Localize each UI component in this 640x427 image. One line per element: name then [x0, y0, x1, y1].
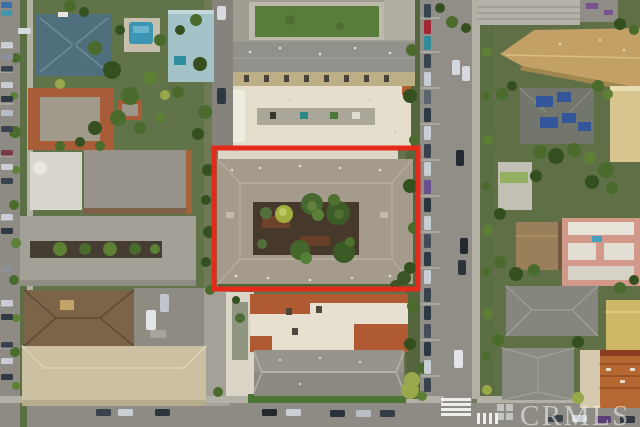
roof-hatch — [286, 308, 292, 315]
palm-tree — [345, 237, 355, 247]
parked-car — [1, 358, 13, 364]
aerial-photo-viewport: CRMLS — [0, 0, 640, 427]
parked-car — [1, 374, 13, 380]
roof-vent — [249, 95, 251, 97]
parked-car — [118, 409, 133, 416]
crmls-logo-square — [497, 413, 504, 420]
parked-car — [330, 410, 345, 417]
roof-vent — [319, 357, 321, 359]
parked-car — [1, 54, 13, 60]
white-wing-courtyard — [232, 302, 248, 360]
parked-car — [424, 378, 431, 392]
balcony — [630, 368, 635, 371]
tile-roof-section — [310, 294, 408, 303]
roof-vent — [354, 47, 357, 50]
roof-vent — [267, 277, 270, 280]
tile-roof-section — [250, 336, 272, 352]
tile-roof-section — [354, 324, 408, 352]
tree — [629, 25, 639, 35]
tree — [585, 175, 599, 189]
parked-car — [1, 2, 12, 8]
tree — [154, 34, 166, 46]
crosswalk-stripe — [489, 413, 492, 424]
parked-car — [424, 234, 431, 248]
roof-vent — [231, 169, 234, 172]
car — [452, 60, 460, 75]
tree — [232, 296, 240, 304]
tree — [614, 18, 626, 30]
palm-tree — [11, 238, 21, 248]
courtyard-lawn — [255, 6, 379, 37]
tree — [121, 87, 139, 105]
tree — [584, 152, 596, 164]
palm-tree — [482, 352, 490, 360]
facade-window — [304, 75, 309, 82]
roof-edge — [610, 86, 640, 91]
tree — [88, 41, 102, 55]
parked-car — [424, 180, 431, 194]
roof-vent — [369, 99, 371, 101]
white-turret-building — [30, 152, 82, 210]
palm-tree — [12, 314, 20, 322]
tree — [175, 25, 185, 35]
parked-car — [424, 252, 431, 266]
car — [454, 350, 463, 368]
tree — [404, 262, 416, 274]
parked-car — [424, 20, 431, 34]
crmls-logo-square — [506, 413, 513, 420]
roof-hatch — [292, 328, 298, 335]
crmls-logo-square — [497, 404, 504, 411]
lawn-shrub — [285, 15, 295, 25]
tree — [403, 89, 417, 103]
roof-vent — [289, 99, 291, 101]
tree — [55, 141, 65, 151]
purple-awning — [586, 3, 598, 9]
tree — [201, 195, 211, 205]
courtyard-building-wing — [384, 0, 415, 40]
tree — [190, 14, 202, 26]
small-pool — [592, 236, 602, 242]
roof-vent — [279, 47, 282, 50]
tree — [95, 141, 105, 151]
roof-vent — [279, 359, 281, 361]
palm-frond — [334, 209, 344, 219]
parked-car — [424, 270, 431, 284]
rooftop-structure — [60, 300, 74, 310]
turret-dome — [33, 161, 47, 175]
tree — [75, 137, 85, 147]
tree — [417, 391, 427, 401]
pool-highlight — [133, 26, 149, 33]
tile-roof-center — [40, 97, 100, 141]
parked-car — [424, 162, 431, 176]
car — [217, 88, 226, 104]
parked-car — [424, 216, 431, 230]
parked-car — [1, 42, 13, 48]
parked-car — [424, 54, 431, 68]
cream-house — [610, 86, 640, 162]
tree — [496, 88, 508, 100]
roof-vent — [351, 277, 354, 280]
parked-car — [286, 409, 301, 416]
tree — [143, 71, 157, 85]
parked-car — [1, 96, 13, 102]
parked-car — [424, 360, 431, 374]
pink-complex-roof — [604, 243, 634, 260]
parked-car — [146, 310, 156, 330]
tree — [629, 275, 639, 285]
tree — [201, 257, 211, 267]
aerial-scene — [0, 0, 640, 427]
tree — [446, 16, 458, 28]
tree — [507, 81, 517, 91]
tree — [572, 336, 584, 348]
pink-complex-roof — [568, 222, 634, 235]
tree — [172, 86, 184, 98]
courtyard-object — [352, 112, 360, 119]
tree — [150, 244, 160, 254]
roof-vent — [389, 52, 392, 55]
building-edge — [84, 208, 192, 214]
solar-panel — [536, 96, 553, 107]
facade-window — [364, 75, 369, 82]
parked-car — [1, 342, 13, 348]
palm-tree — [482, 47, 492, 57]
car — [462, 66, 470, 81]
roof-vent — [319, 53, 322, 56]
parked-car — [424, 72, 431, 86]
apartment-courtyard — [30, 241, 162, 258]
cream-building-wing — [233, 90, 245, 142]
sidewalk-right — [472, 0, 480, 399]
tree — [160, 90, 170, 100]
small-white-building — [498, 162, 532, 210]
courtyard-object — [270, 112, 276, 119]
roof-vent — [329, 95, 331, 97]
alley-top — [212, 0, 233, 152]
roof-vent — [249, 51, 252, 54]
gray-hip-house — [506, 286, 598, 336]
crosswalk-stripe — [477, 413, 480, 424]
parked-car — [1, 214, 13, 220]
tree — [103, 242, 117, 256]
pink-complex-roof — [568, 266, 634, 280]
roof-vent — [623, 49, 626, 52]
palm-tree — [483, 309, 493, 319]
crosswalk-stripe — [483, 413, 486, 424]
parked-car — [1, 126, 13, 132]
tree — [492, 334, 504, 346]
palm-tree — [12, 166, 20, 174]
crosswalk-stripe — [441, 408, 471, 411]
roof-dormer — [58, 12, 68, 17]
roof-edge — [168, 10, 214, 14]
tree — [509, 267, 523, 281]
tree — [530, 170, 542, 182]
parked-car — [1, 300, 13, 306]
tree — [55, 79, 65, 89]
tree — [494, 208, 506, 220]
parked-car — [1, 150, 13, 156]
teal-awning — [174, 56, 186, 65]
watermark-text: CRMLS — [520, 400, 631, 427]
parked-car — [424, 342, 431, 356]
tree — [79, 243, 91, 255]
parked-car — [424, 108, 431, 122]
car — [460, 238, 468, 254]
tree — [64, 0, 76, 12]
tree — [115, 25, 125, 35]
roof-ridge-tile — [600, 350, 640, 356]
palm-frond — [307, 201, 317, 211]
tree — [79, 7, 89, 17]
solar-panel — [540, 117, 558, 128]
parked-car — [424, 126, 431, 140]
tree — [129, 243, 141, 255]
tree — [406, 44, 418, 56]
parked-car — [424, 4, 431, 18]
roof-vent — [559, 43, 562, 46]
courtyard-object — [330, 112, 338, 119]
palm-tree — [9, 275, 19, 285]
parked-car — [155, 409, 170, 416]
tree — [193, 57, 207, 71]
roof-vent — [309, 279, 312, 282]
tree — [213, 387, 223, 397]
tree — [603, 89, 613, 99]
pavement-stain — [150, 330, 166, 338]
parked-car — [424, 288, 431, 302]
parked-car — [356, 410, 371, 417]
solar-panel — [562, 113, 576, 123]
tree — [53, 242, 67, 256]
palm-tree — [482, 385, 492, 395]
palm-tree — [12, 382, 20, 390]
palm-tree — [482, 182, 490, 190]
facade-window — [324, 75, 329, 82]
parked-car — [96, 409, 111, 416]
pink-complex-roof — [568, 243, 596, 260]
palm-tree — [257, 239, 267, 249]
tree — [409, 135, 419, 145]
palm-tree — [312, 209, 324, 221]
parked-car — [1, 66, 13, 72]
crosswalk-stripe — [441, 398, 471, 401]
parked-car — [424, 198, 431, 212]
tree — [494, 256, 506, 268]
car — [458, 260, 466, 275]
parked-car — [424, 144, 431, 158]
tree — [567, 143, 581, 157]
roof-vent — [339, 167, 342, 170]
gray-flat-building — [84, 150, 192, 214]
roof-vent — [394, 131, 396, 133]
parked-car — [424, 324, 431, 338]
tree — [401, 381, 419, 399]
crmls-logo-square — [506, 404, 513, 411]
parked-car — [1, 82, 13, 88]
parked-car — [1, 10, 12, 16]
courtyard-object — [300, 112, 308, 119]
roof-vent — [389, 275, 392, 278]
roof-vent — [599, 39, 602, 42]
palm-frond — [279, 208, 287, 216]
roof-vent — [379, 169, 382, 172]
tree — [103, 61, 121, 79]
building-edge — [20, 280, 196, 286]
facade-window — [384, 75, 389, 82]
palm-tree — [9, 200, 19, 210]
roof-vent — [235, 275, 238, 278]
parked-car — [424, 306, 431, 320]
car — [18, 28, 31, 34]
solar-panel — [578, 122, 591, 131]
tree — [548, 148, 564, 164]
car — [217, 6, 226, 20]
tree — [461, 23, 471, 33]
purple-awning — [604, 10, 613, 15]
aerial-photo: CRMLS — [0, 0, 640, 427]
facade-window — [344, 75, 349, 82]
car — [456, 150, 464, 166]
courtyard-building-roof — [233, 42, 415, 72]
parked-car — [424, 36, 431, 50]
tan-house — [516, 222, 562, 270]
facade-window — [244, 75, 249, 82]
crosswalk-stripe — [441, 403, 471, 406]
tree — [403, 179, 417, 193]
tile-roof-section — [250, 294, 310, 314]
palm-tree — [482, 92, 490, 100]
tree — [134, 122, 146, 134]
roof-vent — [299, 383, 301, 385]
subject-north-strip — [218, 150, 398, 159]
tree — [155, 113, 165, 123]
tree — [110, 110, 126, 126]
parked-car — [1, 110, 13, 116]
building-edge — [22, 400, 206, 406]
rooftop-unit — [226, 212, 234, 218]
parked-car — [1, 164, 13, 170]
roof-hatch — [316, 306, 322, 313]
facade-window — [284, 75, 289, 82]
building-edge — [186, 150, 192, 214]
palm-tree — [300, 252, 312, 264]
rooftop-unit — [380, 212, 388, 218]
parked-car — [1, 266, 13, 272]
tree — [435, 3, 445, 13]
tree — [614, 282, 626, 294]
balcony — [620, 380, 625, 383]
palm-tree — [260, 207, 272, 219]
yellow-house — [606, 300, 640, 356]
parked-car — [160, 294, 169, 312]
palm-tree — [328, 194, 340, 206]
parked-car — [424, 90, 431, 104]
parked-car — [380, 410, 395, 417]
roof-vent — [299, 165, 302, 168]
palm-tree — [483, 225, 493, 235]
tree — [528, 264, 540, 276]
tree — [192, 128, 204, 140]
tree — [598, 162, 614, 178]
tree — [606, 182, 618, 194]
tree — [407, 300, 419, 312]
crosswalk-stripe — [441, 413, 471, 416]
tree — [198, 105, 212, 119]
tan-apartment-building — [22, 346, 206, 406]
balcony — [606, 368, 611, 371]
verge-right — [480, 0, 494, 399]
parked-car — [262, 409, 277, 416]
tree — [592, 80, 604, 92]
tree — [235, 313, 245, 323]
solar-panel — [557, 92, 571, 102]
building-edge — [558, 222, 562, 270]
tree — [404, 338, 416, 350]
parked-car — [1, 178, 13, 184]
parked-car — [1, 228, 13, 234]
palm-tree — [482, 268, 490, 276]
tree — [533, 145, 547, 159]
gray-gable-south — [254, 372, 404, 396]
green-roof-panel — [500, 172, 528, 183]
roof-vent — [259, 167, 262, 170]
parked-car — [1, 314, 13, 320]
roof-vent — [359, 361, 361, 363]
facade-window — [264, 75, 269, 82]
tree — [88, 121, 102, 135]
palm-tree — [483, 135, 493, 145]
lawn-shrub — [336, 22, 344, 30]
